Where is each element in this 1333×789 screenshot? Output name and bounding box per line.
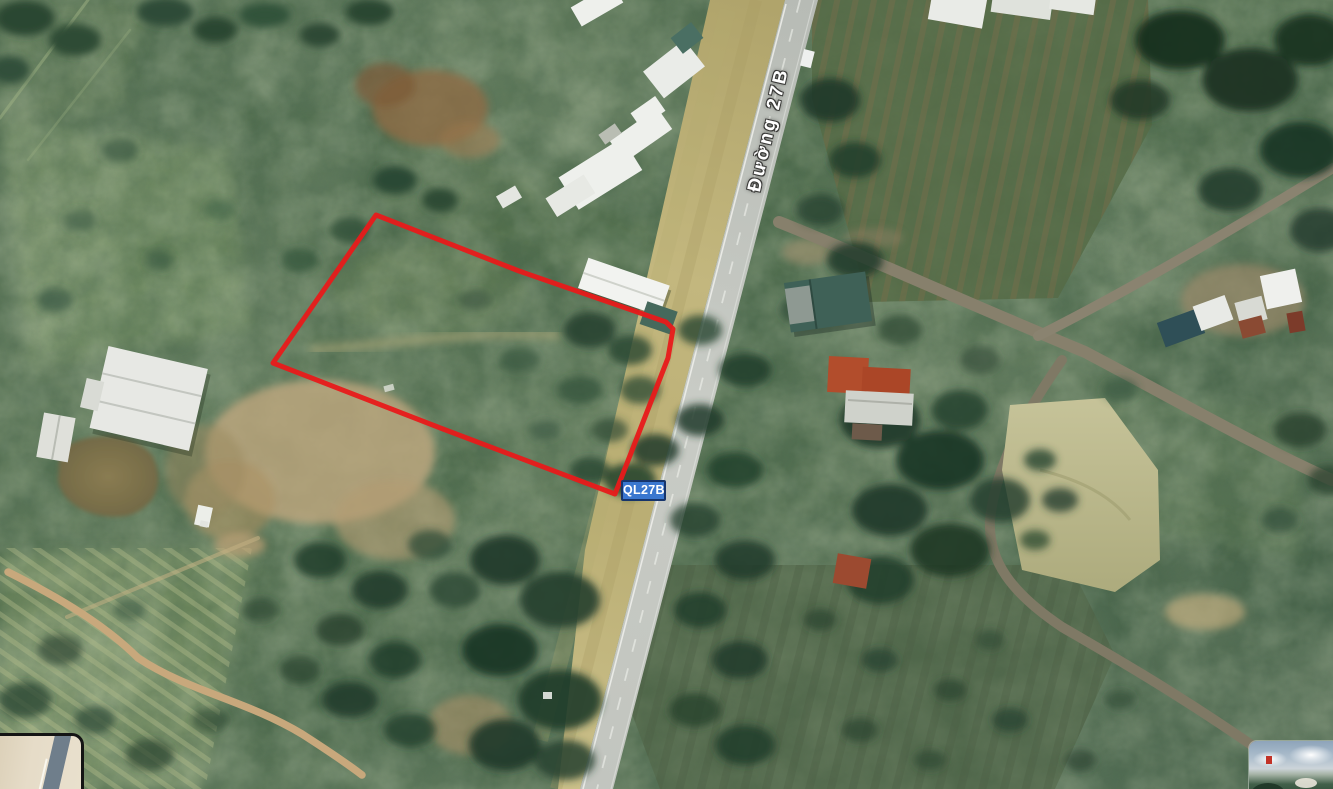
route-badge: QL27B — [621, 480, 666, 501]
photo-preview-thumbnail[interactable] — [1249, 741, 1333, 789]
red-shed — [833, 553, 872, 588]
satellite-map[interactable]: Đường 27B QL27B — [0, 0, 1333, 789]
street-preview-road-stripe — [33, 733, 73, 789]
light-oval-shape — [1295, 778, 1317, 788]
satellite-imagery — [0, 0, 1333, 789]
red-flag-dot — [1266, 756, 1272, 764]
street-view-preview-thumbnail[interactable] — [0, 733, 84, 789]
foliage-shape — [1251, 783, 1285, 789]
cloud-shape — [1289, 745, 1333, 765]
teal-roof-building — [784, 271, 876, 337]
